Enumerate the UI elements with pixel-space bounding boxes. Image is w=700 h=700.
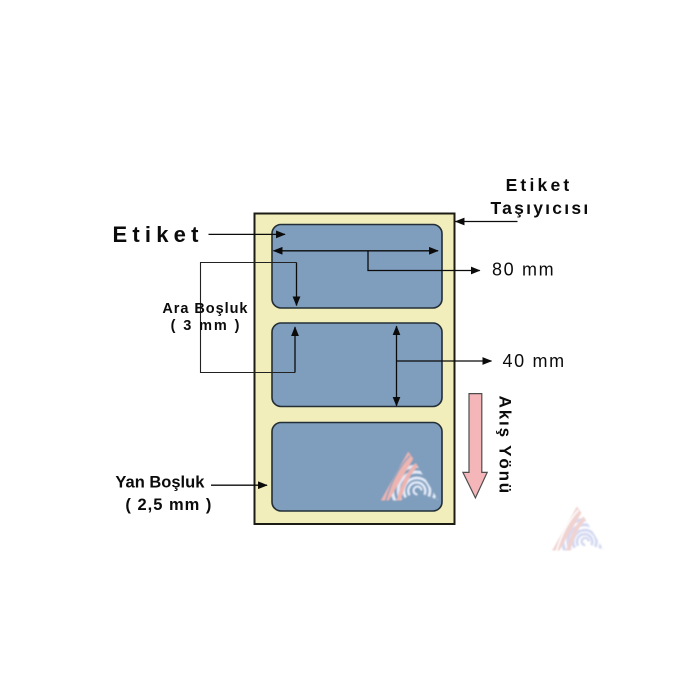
svg-text:Yan Boşluk: Yan Boşluk	[115, 473, 205, 491]
svg-text:80 mm: 80 mm	[492, 260, 555, 280]
svg-text:40 mm: 40 mm	[503, 351, 566, 371]
svg-text:Akış Yönü: Akış Yönü	[496, 396, 515, 495]
svg-text:Etiket: Etiket	[113, 222, 204, 247]
svg-text:( 3 mm ): ( 3 mm )	[171, 318, 242, 334]
svg-text:Etiket: Etiket	[506, 175, 573, 195]
svg-text:Ara Boşluk: Ara Boşluk	[162, 301, 248, 317]
svg-text:( 2,5 mm ): ( 2,5 mm )	[125, 496, 212, 514]
svg-text:Taşıyıcısı: Taşıyıcısı	[490, 198, 590, 218]
